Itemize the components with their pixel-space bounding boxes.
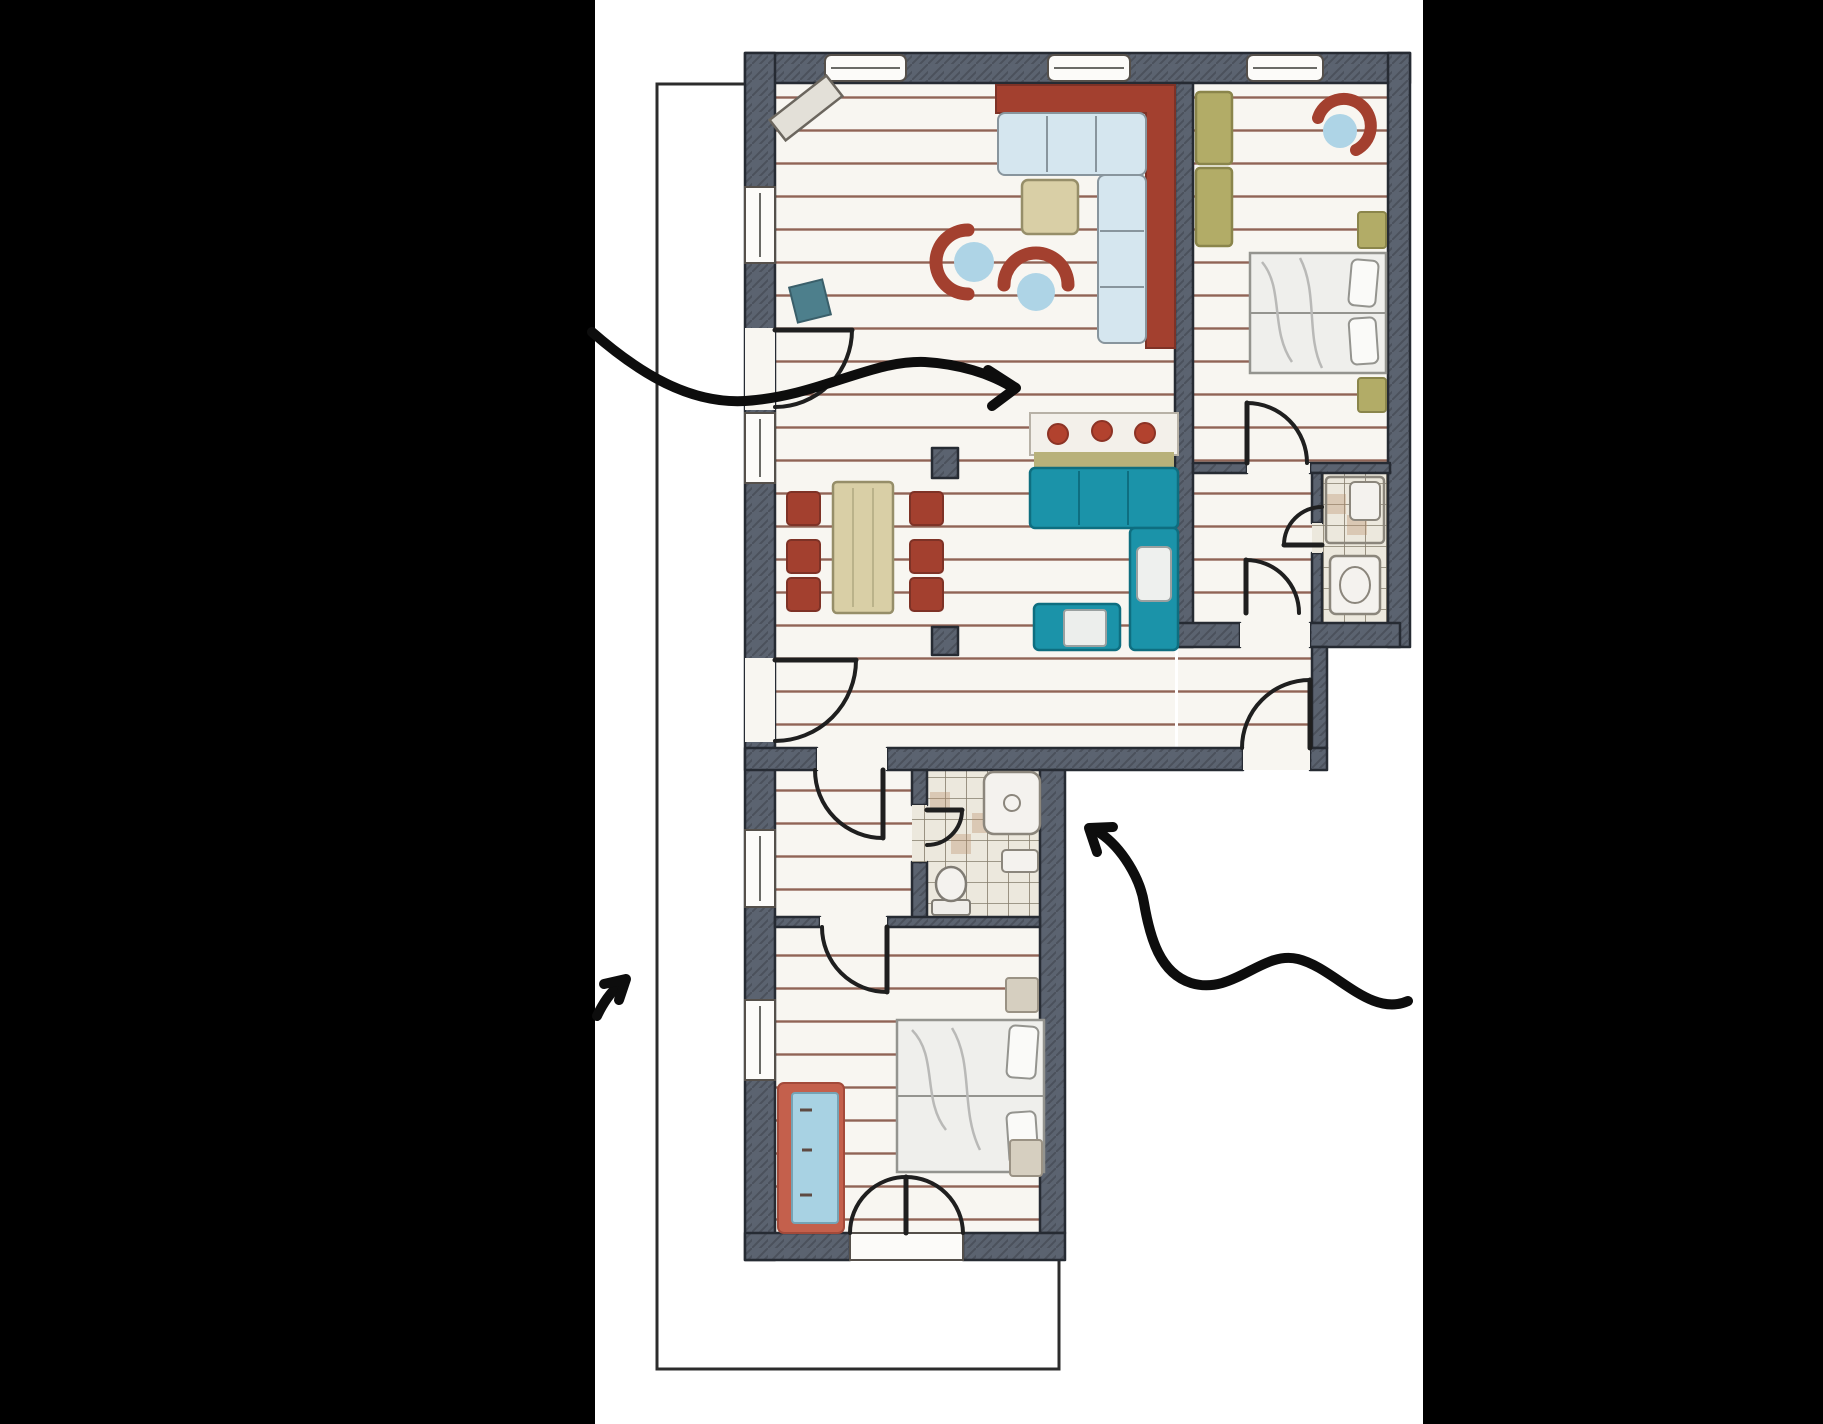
- side-table-teal: [789, 279, 831, 322]
- wall-bottom-b: [963, 1233, 1065, 1260]
- wall-bedroom2-top-b: [887, 917, 1040, 927]
- wall-bedroom2-top-a: [775, 917, 820, 927]
- vanity-chair-seat: [1323, 114, 1357, 148]
- dining-chair: [910, 492, 943, 525]
- shower-2: [984, 772, 1040, 834]
- wall-right-upper: [1388, 53, 1410, 647]
- dining-table: [833, 482, 893, 613]
- wall-hall-bottom-a: [745, 748, 817, 770]
- window-bedroom1-top: [1247, 55, 1323, 81]
- arrow-small-balcony: [597, 979, 626, 1016]
- window-dining-left: [745, 413, 775, 483]
- window-anteroom-left: [745, 830, 775, 907]
- armchair-1-seat: [954, 242, 994, 282]
- kitchen-sink: [1137, 547, 1171, 601]
- wall-corridor-bottom-b: [1310, 623, 1400, 647]
- counter-board: [1034, 452, 1174, 468]
- wall-bottom-a: [745, 1233, 850, 1260]
- crib-mattress: [792, 1093, 838, 1223]
- kitchen-cabinet-row: [1030, 468, 1178, 528]
- pillow: [1348, 317, 1378, 365]
- window-bedroom2-left: [745, 1000, 775, 1080]
- wall-bedroom1-bottom-a: [1193, 463, 1247, 473]
- wall-hall-bottom-b: [887, 748, 1243, 770]
- dishwasher: [1064, 610, 1106, 646]
- burner: [1048, 424, 1068, 444]
- wall-stub-kitchen-lower: [932, 627, 958, 655]
- pillow: [1348, 259, 1379, 307]
- window-living-top-2: [1048, 55, 1130, 81]
- washbasin: [1330, 556, 1380, 614]
- nightstand: [1358, 378, 1386, 412]
- nightstand: [1010, 1140, 1042, 1176]
- wall-bedroom1-bottom-b: [1310, 463, 1390, 473]
- wall-corridor-bath1-b: [1312, 553, 1322, 623]
- nightstand: [1006, 978, 1038, 1012]
- burner: [1135, 423, 1155, 443]
- wall-hall-right: [1312, 647, 1327, 748]
- wall-stub-kitchen-upper: [932, 448, 958, 478]
- dining-chair: [910, 540, 943, 573]
- dining-chair: [910, 578, 943, 611]
- dining-chair: [787, 540, 820, 573]
- wall-anteroom-bath2-a: [912, 770, 927, 805]
- toilet-bowl: [936, 867, 966, 901]
- sofa-cushions-top: [998, 113, 1146, 175]
- bath2-sink: [1002, 850, 1038, 872]
- wardrobe-lower: [1196, 168, 1232, 246]
- dining-chair: [787, 578, 820, 611]
- wardrobe-upper: [1196, 92, 1232, 164]
- wall-corridor-bath1-a: [1312, 473, 1322, 523]
- floor-anteroom: [775, 770, 912, 917]
- armchair-2-seat: [1017, 273, 1055, 311]
- bath-cabinet: [1350, 482, 1380, 520]
- burner: [1092, 421, 1112, 441]
- dining-chair: [787, 492, 820, 525]
- wall-hall-bottom-c: [1310, 748, 1327, 770]
- pillow: [1006, 1025, 1039, 1079]
- arrow-into-lower-unit: [1089, 827, 1408, 1004]
- floor-plan-svg: [0, 0, 1823, 1424]
- floor-corridor: [1193, 473, 1312, 623]
- nightstand: [1358, 212, 1386, 248]
- coffee-table: [1022, 180, 1078, 234]
- floor-plan-page: [0, 0, 1823, 1424]
- window-living-left: [745, 187, 775, 263]
- wall-anteroom-bath2-b: [912, 862, 927, 920]
- sofa-cushions-right: [1098, 175, 1146, 343]
- dining-furniture: [787, 482, 943, 613]
- window-living-top-1: [825, 55, 906, 81]
